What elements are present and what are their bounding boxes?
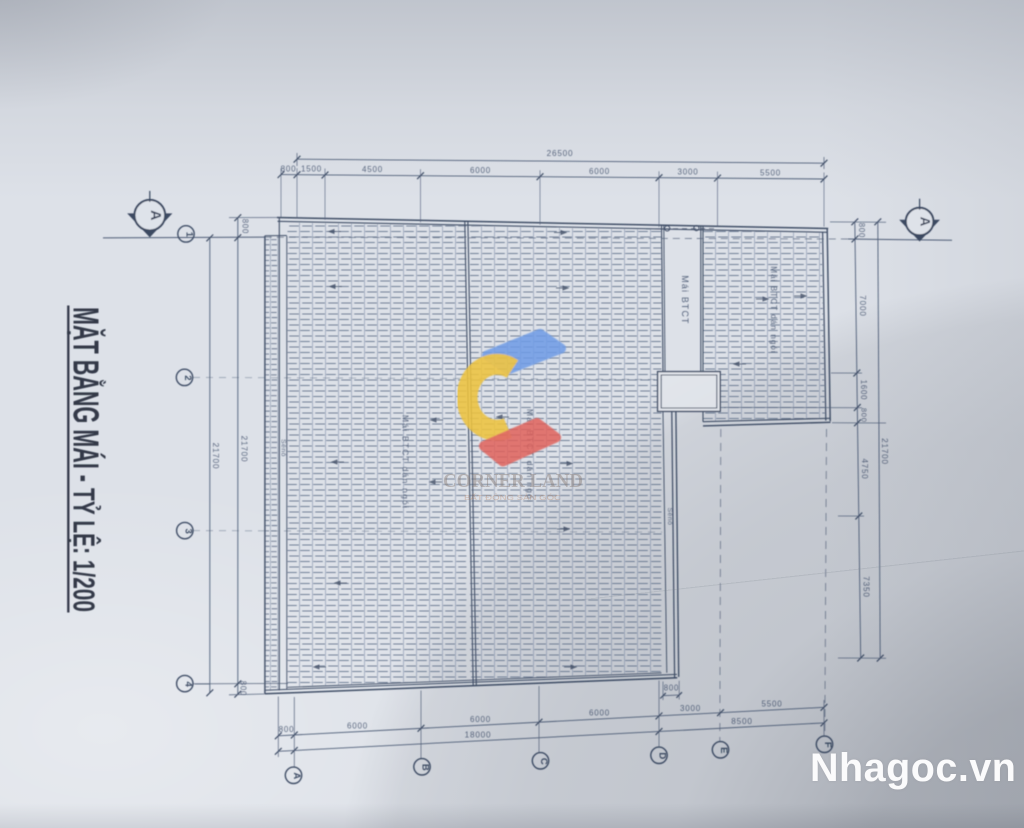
svg-text:18000: 18000 (465, 731, 492, 740)
svg-text:Sênô: Sênô (280, 439, 287, 457)
svg-text:6000: 6000 (470, 715, 491, 724)
svg-text:E: E (718, 747, 729, 753)
svg-text:B: B (420, 764, 431, 771)
svg-text:Mái BTCT dán ngói: Mái BTCT dán ngói (769, 266, 778, 353)
svg-text:1: 1 (184, 232, 195, 238)
svg-text:MẶT BẰNG MÁI -: MẶT BẰNG MÁI - (66, 307, 107, 482)
svg-text:6000: 6000 (347, 721, 368, 730)
svg-text:Sênô: Sênô (666, 508, 673, 526)
svg-text:6000: 6000 (589, 167, 610, 176)
svg-text:A: A (918, 217, 933, 227)
svg-text:3000: 3000 (680, 704, 701, 713)
svg-text:7350: 7350 (862, 576, 871, 597)
svg-text:800: 800 (241, 219, 250, 234)
svg-text:21700: 21700 (240, 436, 249, 463)
svg-text:6000: 6000 (470, 166, 491, 175)
svg-text:Mái BTCT: Mái BTCT (680, 275, 690, 324)
svg-text:800: 800 (279, 725, 295, 734)
svg-text:4750: 4750 (860, 459, 869, 480)
svg-text:A: A (291, 772, 302, 779)
svg-text:3: 3 (182, 528, 193, 533)
svg-text:800: 800 (239, 681, 248, 696)
svg-text:7000: 7000 (858, 295, 867, 316)
svg-text:5500: 5500 (762, 700, 783, 709)
svg-text:800: 800 (664, 684, 679, 693)
svg-text:4500: 4500 (362, 165, 383, 174)
svg-text:1500: 1500 (301, 165, 322, 174)
svg-text:3000: 3000 (678, 168, 699, 177)
svg-text:21700: 21700 (880, 438, 889, 465)
svg-text:21700: 21700 (211, 443, 220, 470)
svg-text:1600: 1600 (859, 380, 868, 401)
svg-text:800: 800 (859, 408, 868, 423)
svg-text:800: 800 (281, 165, 297, 174)
svg-text:CORNER LAND: CORNER LAND (443, 470, 583, 492)
svg-text:BẤT ĐỘNG SẢN GÓC: BẤT ĐỘNG SẢN GÓC (464, 492, 562, 502)
svg-text:A: A (147, 210, 163, 221)
svg-text:D: D (657, 752, 668, 759)
svg-text:2: 2 (182, 375, 193, 380)
svg-text:5500: 5500 (760, 168, 781, 177)
svg-text:26500: 26500 (547, 149, 574, 158)
svg-text:Mái BTCT dán ngói: Mái BTCT dán ngói (401, 415, 411, 509)
svg-text:8500: 8500 (731, 717, 752, 726)
svg-text:800: 800 (857, 223, 866, 238)
svg-text:6000: 6000 (589, 709, 610, 718)
svg-text:C: C (538, 758, 549, 765)
svg-text:4: 4 (182, 681, 193, 687)
svg-text:TỶ LỆ: 1/200: TỶ LỆ: 1/200 (67, 488, 103, 612)
